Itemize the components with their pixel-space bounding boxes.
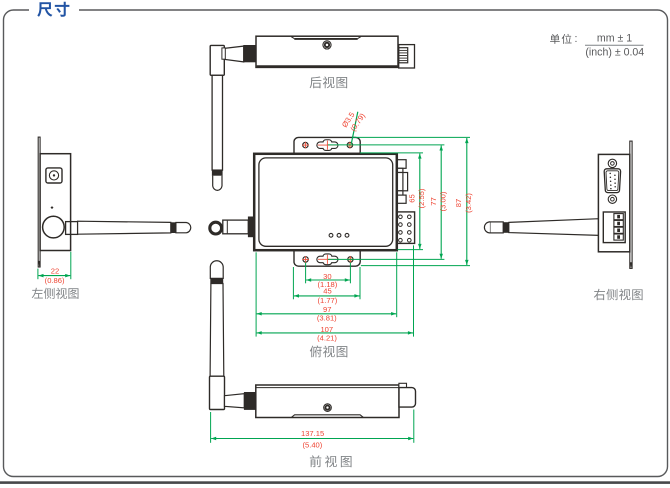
svg-text:137.15: 137.15 — [301, 429, 324, 438]
svg-text:65: 65 — [408, 194, 417, 202]
svg-text:(3.81): (3.81) — [317, 314, 337, 323]
svg-text:(2.55): (2.55) — [417, 188, 426, 208]
svg-text:87: 87 — [454, 199, 463, 207]
svg-text::: : — [575, 33, 578, 45]
svg-text:(0.86): (0.86) — [45, 276, 65, 285]
svg-text:(1.77): (1.77) — [317, 296, 337, 305]
svg-text:(5.40): (5.40) — [302, 441, 322, 450]
svg-text:(3.00): (3.00) — [438, 191, 447, 211]
svg-text:(4.21): (4.21) — [317, 334, 337, 343]
svg-text:77: 77 — [429, 197, 438, 205]
svg-text:45: 45 — [323, 287, 331, 296]
svg-text:22: 22 — [51, 267, 59, 276]
svg-text:(inch) ± 0.04: (inch) ± 0.04 — [585, 47, 644, 59]
svg-text:mm ± 1: mm ± 1 — [597, 33, 632, 45]
svg-text:(3.42): (3.42) — [464, 193, 473, 213]
